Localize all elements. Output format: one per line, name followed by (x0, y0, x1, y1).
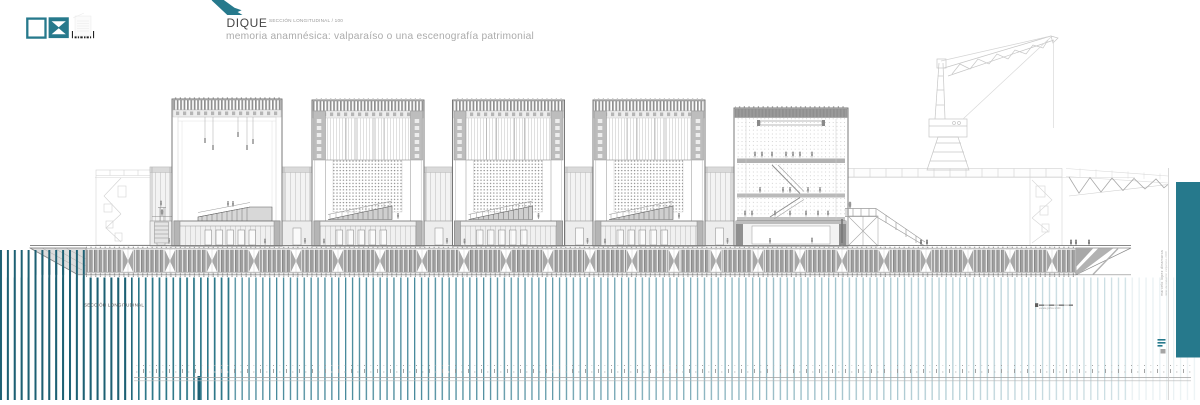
svg-text:memoria anamnésica: valparaíso: memoria anamnésica: valparaíso o una esc… (226, 31, 534, 42)
svg-text:taller de titulación valparaís: taller de titulación valparaíso 2008 (1164, 251, 1168, 296)
svg-text:escala gráfica 1/100: escala gráfica 1/100 (1039, 307, 1061, 310)
svg-text:DIQUE: DIQUE (227, 16, 268, 30)
svg-text:SECCIÓN LONGITUDINAL: SECCIÓN LONGITUDINAL (84, 302, 144, 308)
svg-text:SECCIÓN LONGITUDINAL / 100: SECCIÓN LONGITUDINAL / 100 (269, 17, 343, 23)
svg-text:marcelo lópez dinamarca: marcelo lópez dinamarca (1160, 250, 1164, 296)
